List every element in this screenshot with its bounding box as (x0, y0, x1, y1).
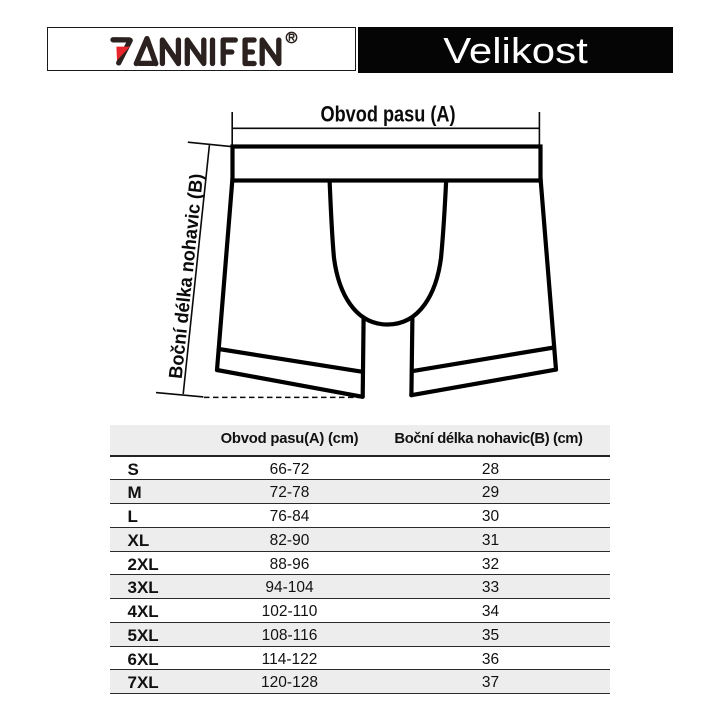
svg-text:Obvod pasu (A): Obvod pasu (A) (321, 102, 456, 127)
svg-text:Boční délka nohavic (B): Boční délka nohavic (B) (166, 173, 208, 380)
